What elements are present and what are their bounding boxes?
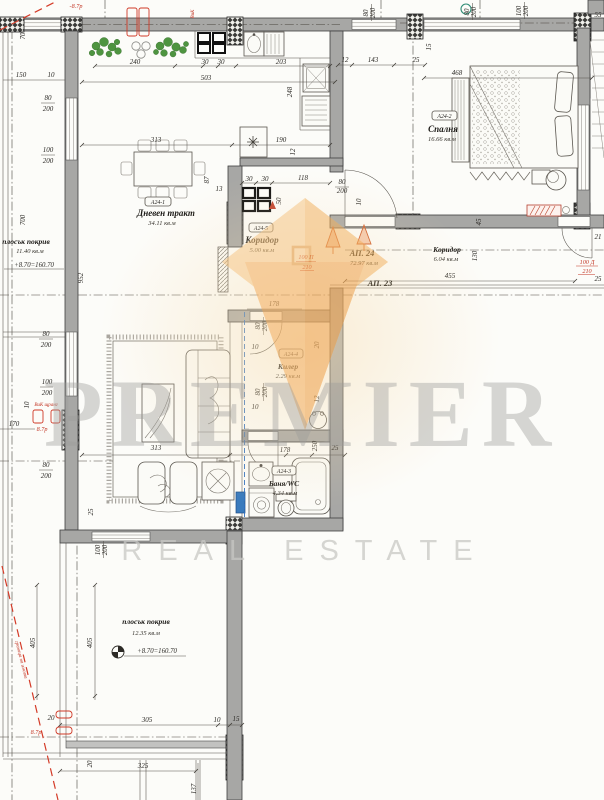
red-level-bottom: 8.7р [31, 729, 42, 736]
dimension-label: 468 [452, 69, 463, 77]
dimension-label: 503 [201, 74, 212, 82]
dimension-label: 100 [43, 146, 54, 154]
dimension-label: 700 [19, 214, 27, 225]
dimension-label: 10 [252, 403, 260, 411]
bath-code: A24-3 [276, 468, 291, 475]
oven-icon [302, 96, 330, 126]
floor-plan-page: A24-1 Дневен тракт 34.11 кв.м A24-5 Кори… [0, 0, 604, 800]
duct-shaft-icon [243, 188, 276, 211]
bed [470, 66, 578, 180]
dimension-label: 10 [214, 716, 222, 724]
hall-door-height: 210 [582, 268, 592, 275]
hall-code: A24-5 [253, 225, 268, 232]
dimension-label: 30 [217, 58, 226, 66]
red-level-top: -8.7р [70, 3, 83, 10]
dimension-label: 13 [216, 185, 224, 193]
kitchen [195, 31, 330, 211]
neighbor-apartment-id: АП. 23 [367, 278, 394, 288]
dimension-label: 200 [337, 187, 348, 195]
dimension-label: 15 [425, 43, 433, 51]
apartment-id: АП. 24 [349, 248, 375, 258]
dimension-label: 200 [43, 157, 54, 165]
dimension-label: 12 [313, 395, 321, 403]
dimension-label: 170 [9, 420, 20, 428]
toilet-icon [276, 494, 296, 516]
dimension-label: 70 [19, 32, 27, 40]
bedroom-furniture [452, 66, 578, 216]
red-boundary-note: граница на имота [13, 640, 27, 679]
dimension-label: 12 [342, 56, 350, 64]
dimension-label: 21 [595, 233, 602, 241]
radiator-icon [527, 205, 570, 216]
entry-door-width: 100 П [298, 254, 314, 261]
dimension-label: 87 [203, 176, 211, 184]
red-riser-note: ВиК щранг [34, 403, 57, 408]
dimension-label: 12 [289, 148, 297, 156]
roof-bottom-name: плосък покрив [122, 617, 170, 626]
plumbing-riser [236, 492, 245, 513]
terrace-parapet [66, 741, 227, 748]
dimension-label: 250 [311, 440, 319, 451]
roof-left-name: плосък покрив [2, 237, 50, 246]
dimension-label: 203 [276, 58, 287, 66]
dimension-label: 20 [86, 760, 94, 768]
dimension-label: 25 [87, 508, 95, 516]
corridor-door-swing [562, 228, 592, 258]
dimension-label: 313 [150, 136, 162, 144]
dimension-label: 325 [137, 762, 149, 770]
red-boundary-bottom [2, 566, 58, 800]
tv-unit [202, 462, 234, 500]
bath-name: Баня/WC [268, 479, 300, 488]
dimension-label: 80 [339, 178, 347, 186]
dimension-label: 10 [355, 198, 363, 206]
kitchen-sink-icon [244, 32, 284, 56]
dimension-label: 30 [201, 58, 210, 66]
dimension-label: 15 [233, 715, 241, 723]
living-code: A24-1 [150, 199, 165, 206]
roof-bottom-area: 12.35 кв.м [132, 630, 160, 637]
dimension-label: 200 [42, 389, 53, 397]
dimension-label: 200 [41, 341, 52, 349]
pocket-door [218, 247, 228, 292]
dimension-label: 45 [475, 218, 483, 226]
roof-left-level: +8.70=160.70 [14, 262, 54, 269]
dimension-label: 405 [29, 637, 37, 648]
dimension-label: 178 [269, 300, 280, 308]
dimension-label: 10 [252, 343, 260, 351]
dimension-label: 25 [595, 275, 603, 283]
corridor-area: 6.04 кв.м [434, 256, 459, 263]
corridor-name: Коридор [432, 245, 461, 254]
dimension-label: 200 [43, 105, 54, 113]
dimension-label: 130 [471, 250, 479, 261]
dimension-label: 80 [45, 94, 53, 102]
fridge-icon [240, 127, 267, 157]
floor-plan-drawing: A24-1 Дневен тракт 34.11 кв.м A24-5 Кори… [0, 0, 604, 800]
bed-runner [470, 172, 530, 180]
dimension-label: 30 [261, 175, 270, 183]
living-name: Дневен тракт [136, 208, 195, 218]
apartment-area: 72.97 кв.м [350, 260, 378, 267]
dimension-label: 25 [413, 56, 421, 64]
living-area: 34.11 кв.м [147, 220, 175, 227]
stove-icon [198, 33, 225, 53]
dimension-label: 200 [470, 6, 478, 17]
dimension-label: 405 [86, 637, 94, 648]
dimension-label: 200 [101, 544, 109, 555]
storage-area: 2.29 кв.м [276, 373, 301, 380]
staircase [590, 40, 604, 158]
bedroom-area: 16.66 кв.м [428, 136, 456, 143]
dimension-label: 455 [445, 272, 456, 280]
dimension-label: 10 [48, 71, 56, 79]
red-riser: ВиК [191, 9, 196, 19]
dimension-label: 25 [332, 444, 340, 452]
storage-name: Килер [277, 362, 298, 371]
dining-set [121, 140, 205, 198]
red-level-mid: 8.7р [37, 426, 48, 433]
dimension-label: 178 [280, 446, 291, 454]
dimension-label: 200 [261, 386, 269, 397]
dimension-label: 248 [286, 86, 294, 97]
entry-door-swing [345, 170, 397, 218]
roof-left-area: 11.40 кв.м [16, 248, 43, 255]
living-furniture [109, 337, 234, 512]
level-marker-icon [112, 646, 124, 658]
dishwasher-icon [303, 64, 329, 92]
dimension-label: 200 [522, 5, 530, 16]
dimension-label: 20 [313, 341, 321, 349]
coffee-table [142, 384, 174, 442]
dimension-label: 80 [43, 461, 51, 469]
dimension-label: 190 [276, 136, 287, 144]
dimension-label: 143 [368, 56, 379, 64]
entry-door-height: 210 [302, 264, 312, 271]
dimension-label: 200 [261, 320, 269, 331]
bedroom-code: A24-2 [436, 113, 451, 120]
bedroom-name: Спалня [428, 124, 458, 134]
dimension-label: 240 [130, 58, 141, 66]
stool [546, 170, 566, 190]
round-stools-icon [132, 42, 150, 58]
hall-door-width: 100 Д [580, 259, 596, 266]
basin-icon [310, 412, 327, 429]
hall-area: 5.00 кв.м [250, 247, 275, 254]
roof-bottom-level: +8.70=160.70 [137, 648, 177, 655]
dimension-label: 20 [48, 714, 56, 722]
dimension-label: 952 [77, 272, 85, 283]
bath-area: 4.34 кв.м [273, 490, 298, 497]
dimension-label: 30 [245, 175, 254, 183]
dimension-label: 80 [43, 330, 51, 338]
dimension-label: 200 [369, 7, 377, 18]
dimension-label: 313 [150, 444, 162, 452]
hall-name: Коридор [244, 235, 279, 245]
washing-machine-icon [249, 488, 274, 517]
dimension-label: 137 [190, 783, 198, 794]
dimension-label: 10 [23, 401, 31, 409]
dimension-label: 150 [16, 71, 27, 79]
dimension-label: 50 [275, 197, 283, 205]
dimension-label: 55 [595, 11, 603, 19]
dimension-label: 305 [141, 716, 153, 724]
dimension-label: 200 [41, 472, 52, 480]
dimension-label: 118 [298, 174, 308, 182]
dimension-label: 100 [42, 378, 53, 386]
sofa [186, 350, 230, 458]
storage-code: A24-4 [283, 351, 298, 358]
